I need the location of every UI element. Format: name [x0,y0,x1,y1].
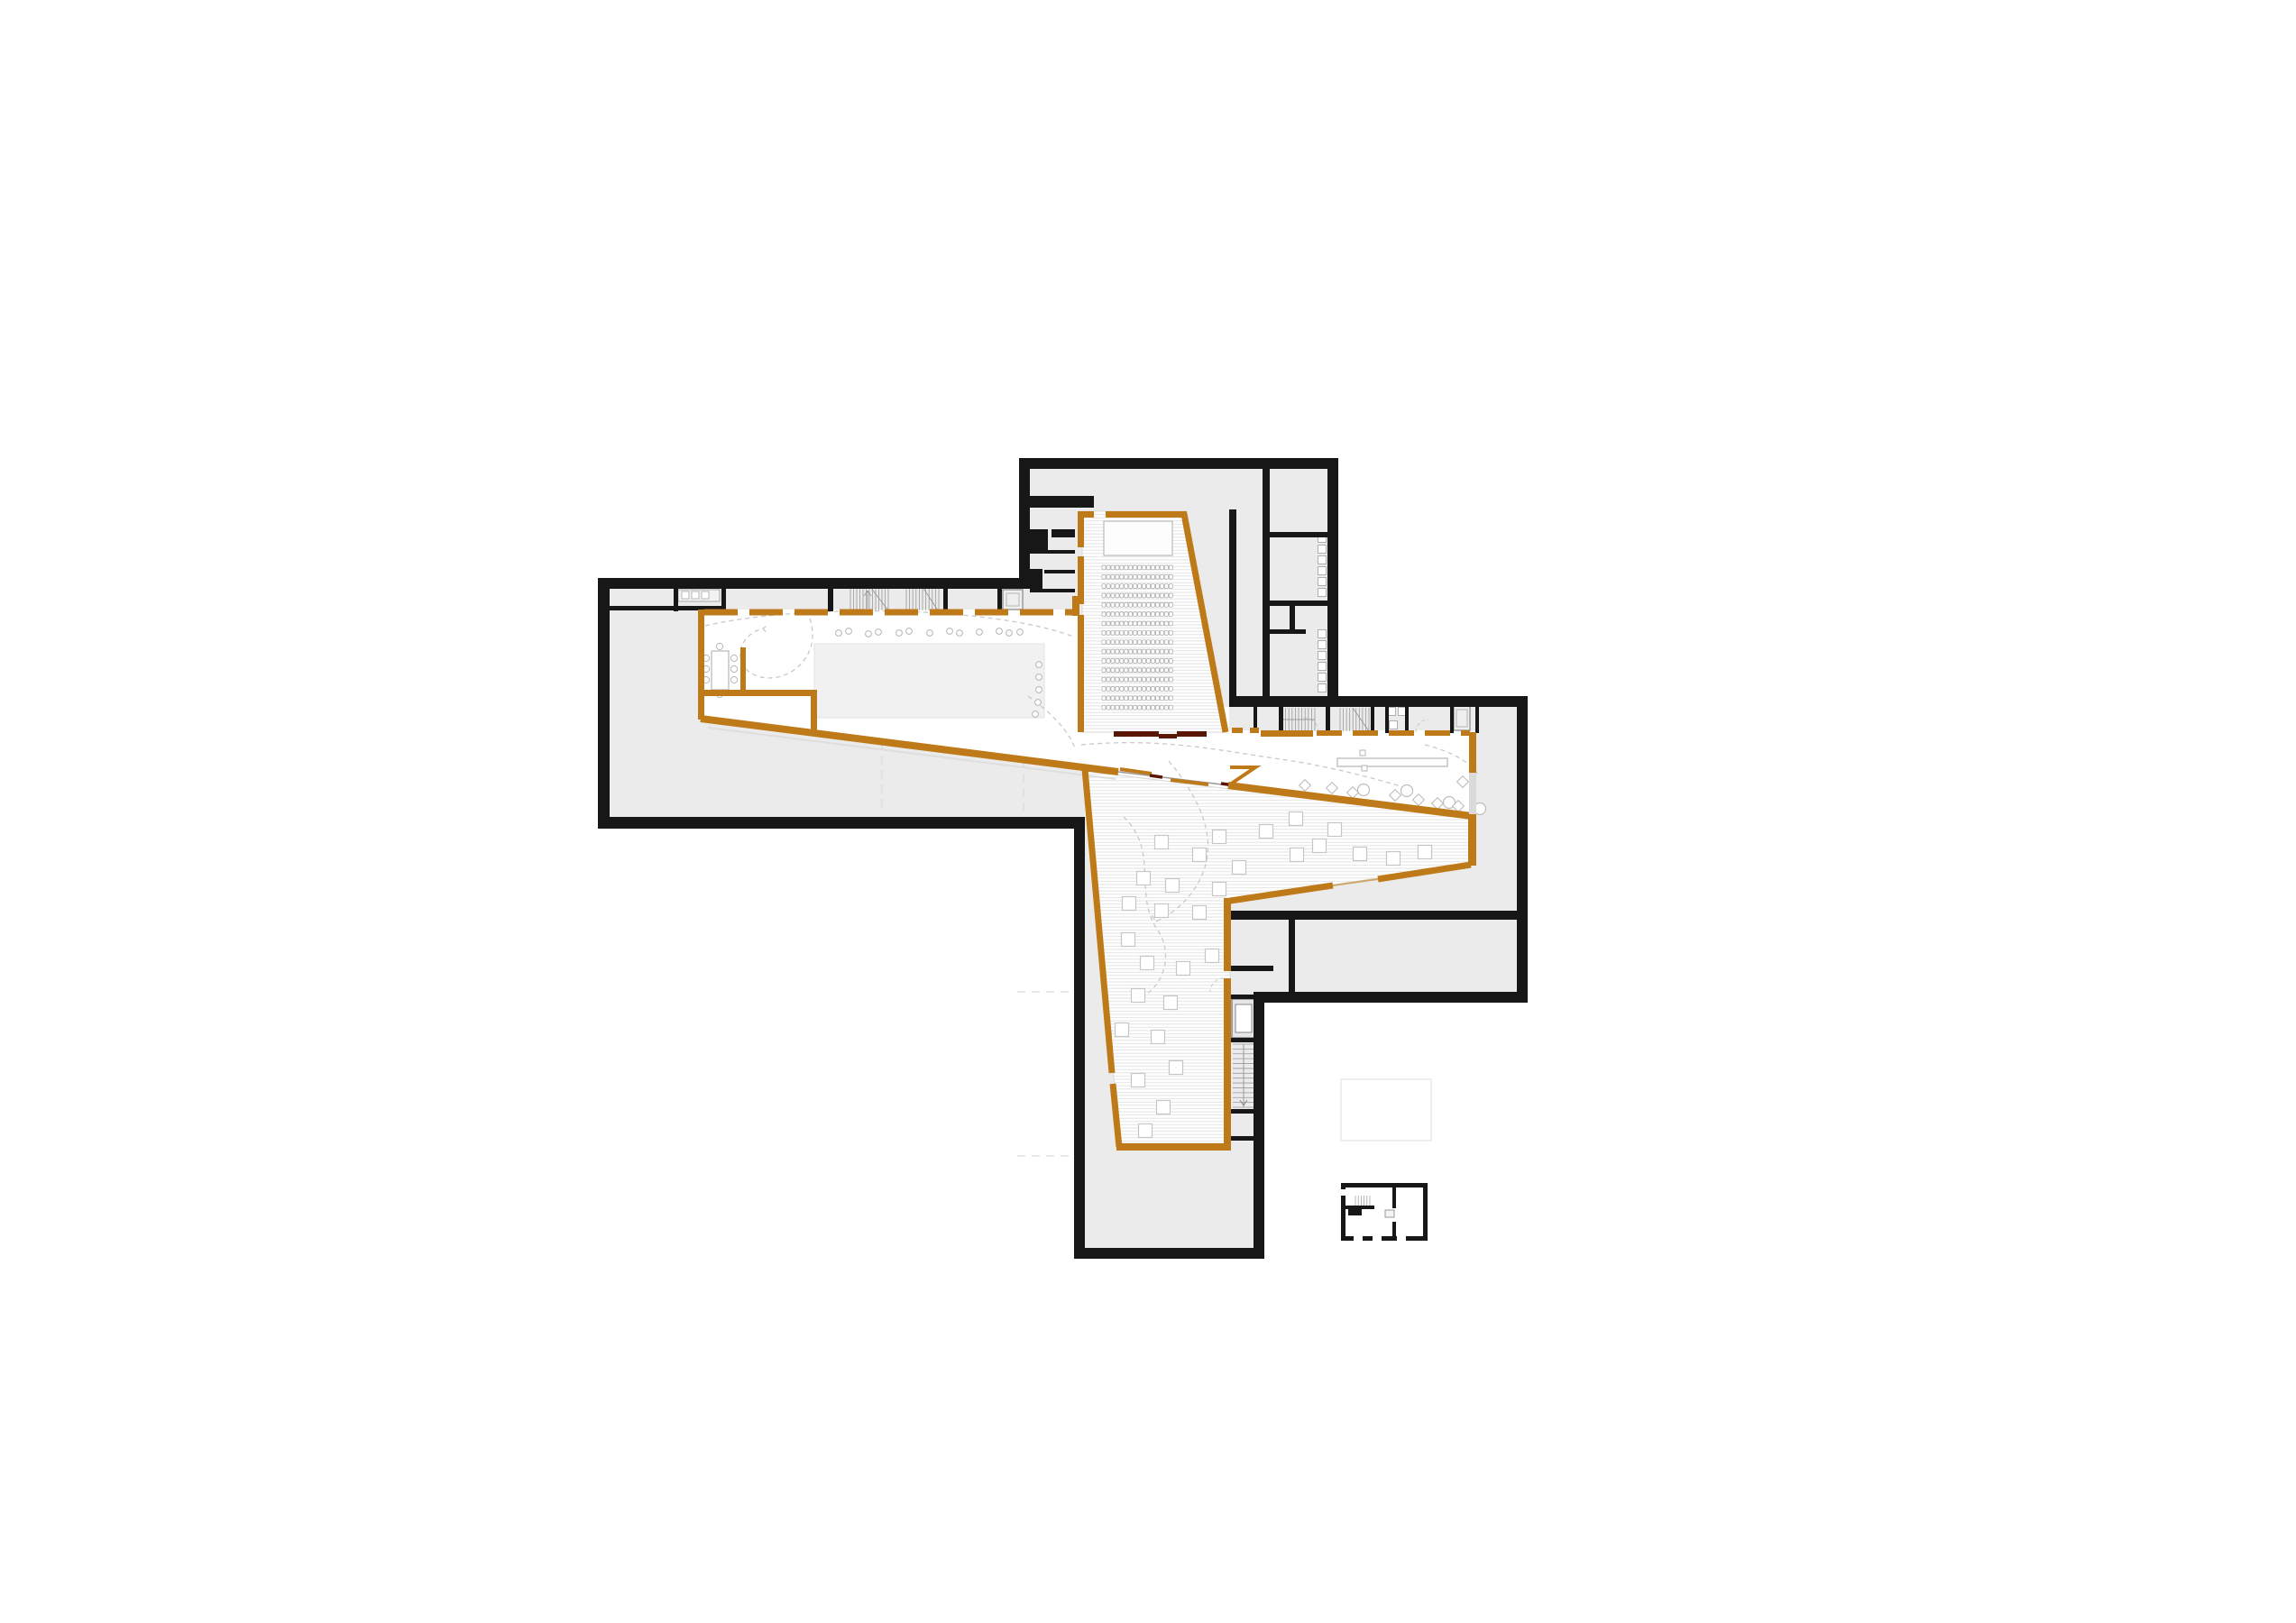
outer-wall-stem-east [1254,992,1264,1259]
auditorium-stage [1104,521,1172,555]
outer-wall-right-wing-east [1517,696,1528,1003]
hall-rug [814,644,1044,718]
outer-wall-top-block-top [1019,458,1338,469]
stem-elevator-car [1235,1004,1252,1032]
orange-wall-storage-east [811,690,817,735]
orange-wall-meeting-divider [740,647,746,690]
orange-wall-east-band-solid [1261,730,1313,737]
outer-wall-top-block-east [1327,458,1338,707]
floor-plan-canvas [0,0,2296,1623]
orange-wall-meeting-west [698,610,704,720]
outer-wall-left-wing-west [598,578,610,829]
ghost-outline [1341,1079,1431,1141]
diagonal-door-leaf-1 [1150,775,1162,777]
outer-wall-left-wing-bottom [598,817,1085,829]
band-elevator [1003,590,1023,610]
detached-room-fixture [1385,1210,1394,1217]
page [0,0,2296,1623]
orange-wall-auditorium-west [1078,511,1084,732]
info-counter [1337,758,1447,766]
kitchenette-fixtures [682,591,709,599]
outer-wall-left-wing-top [598,578,1024,589]
tip-glass-panel [1469,771,1476,816]
outer-wall-stem-bottom [1074,1248,1264,1259]
orange-wall-meeting-south [698,690,816,696]
outer-wall-stem-west [1074,817,1085,1259]
orange-wall-tip-upper [1469,732,1476,773]
orange-wall-stem-east [1224,898,1231,1145]
outer-wall-right-wing-top [1335,696,1528,707]
orange-wall-tip [1468,814,1476,866]
meeting-table [712,651,729,690]
orange-wall-funnel-bottom [1116,1143,1231,1151]
outer-wall-right-wing-bottom [1254,992,1528,1003]
outer-wall-top-block-west [1019,458,1030,589]
wall-east-band-top [1229,696,1337,707]
